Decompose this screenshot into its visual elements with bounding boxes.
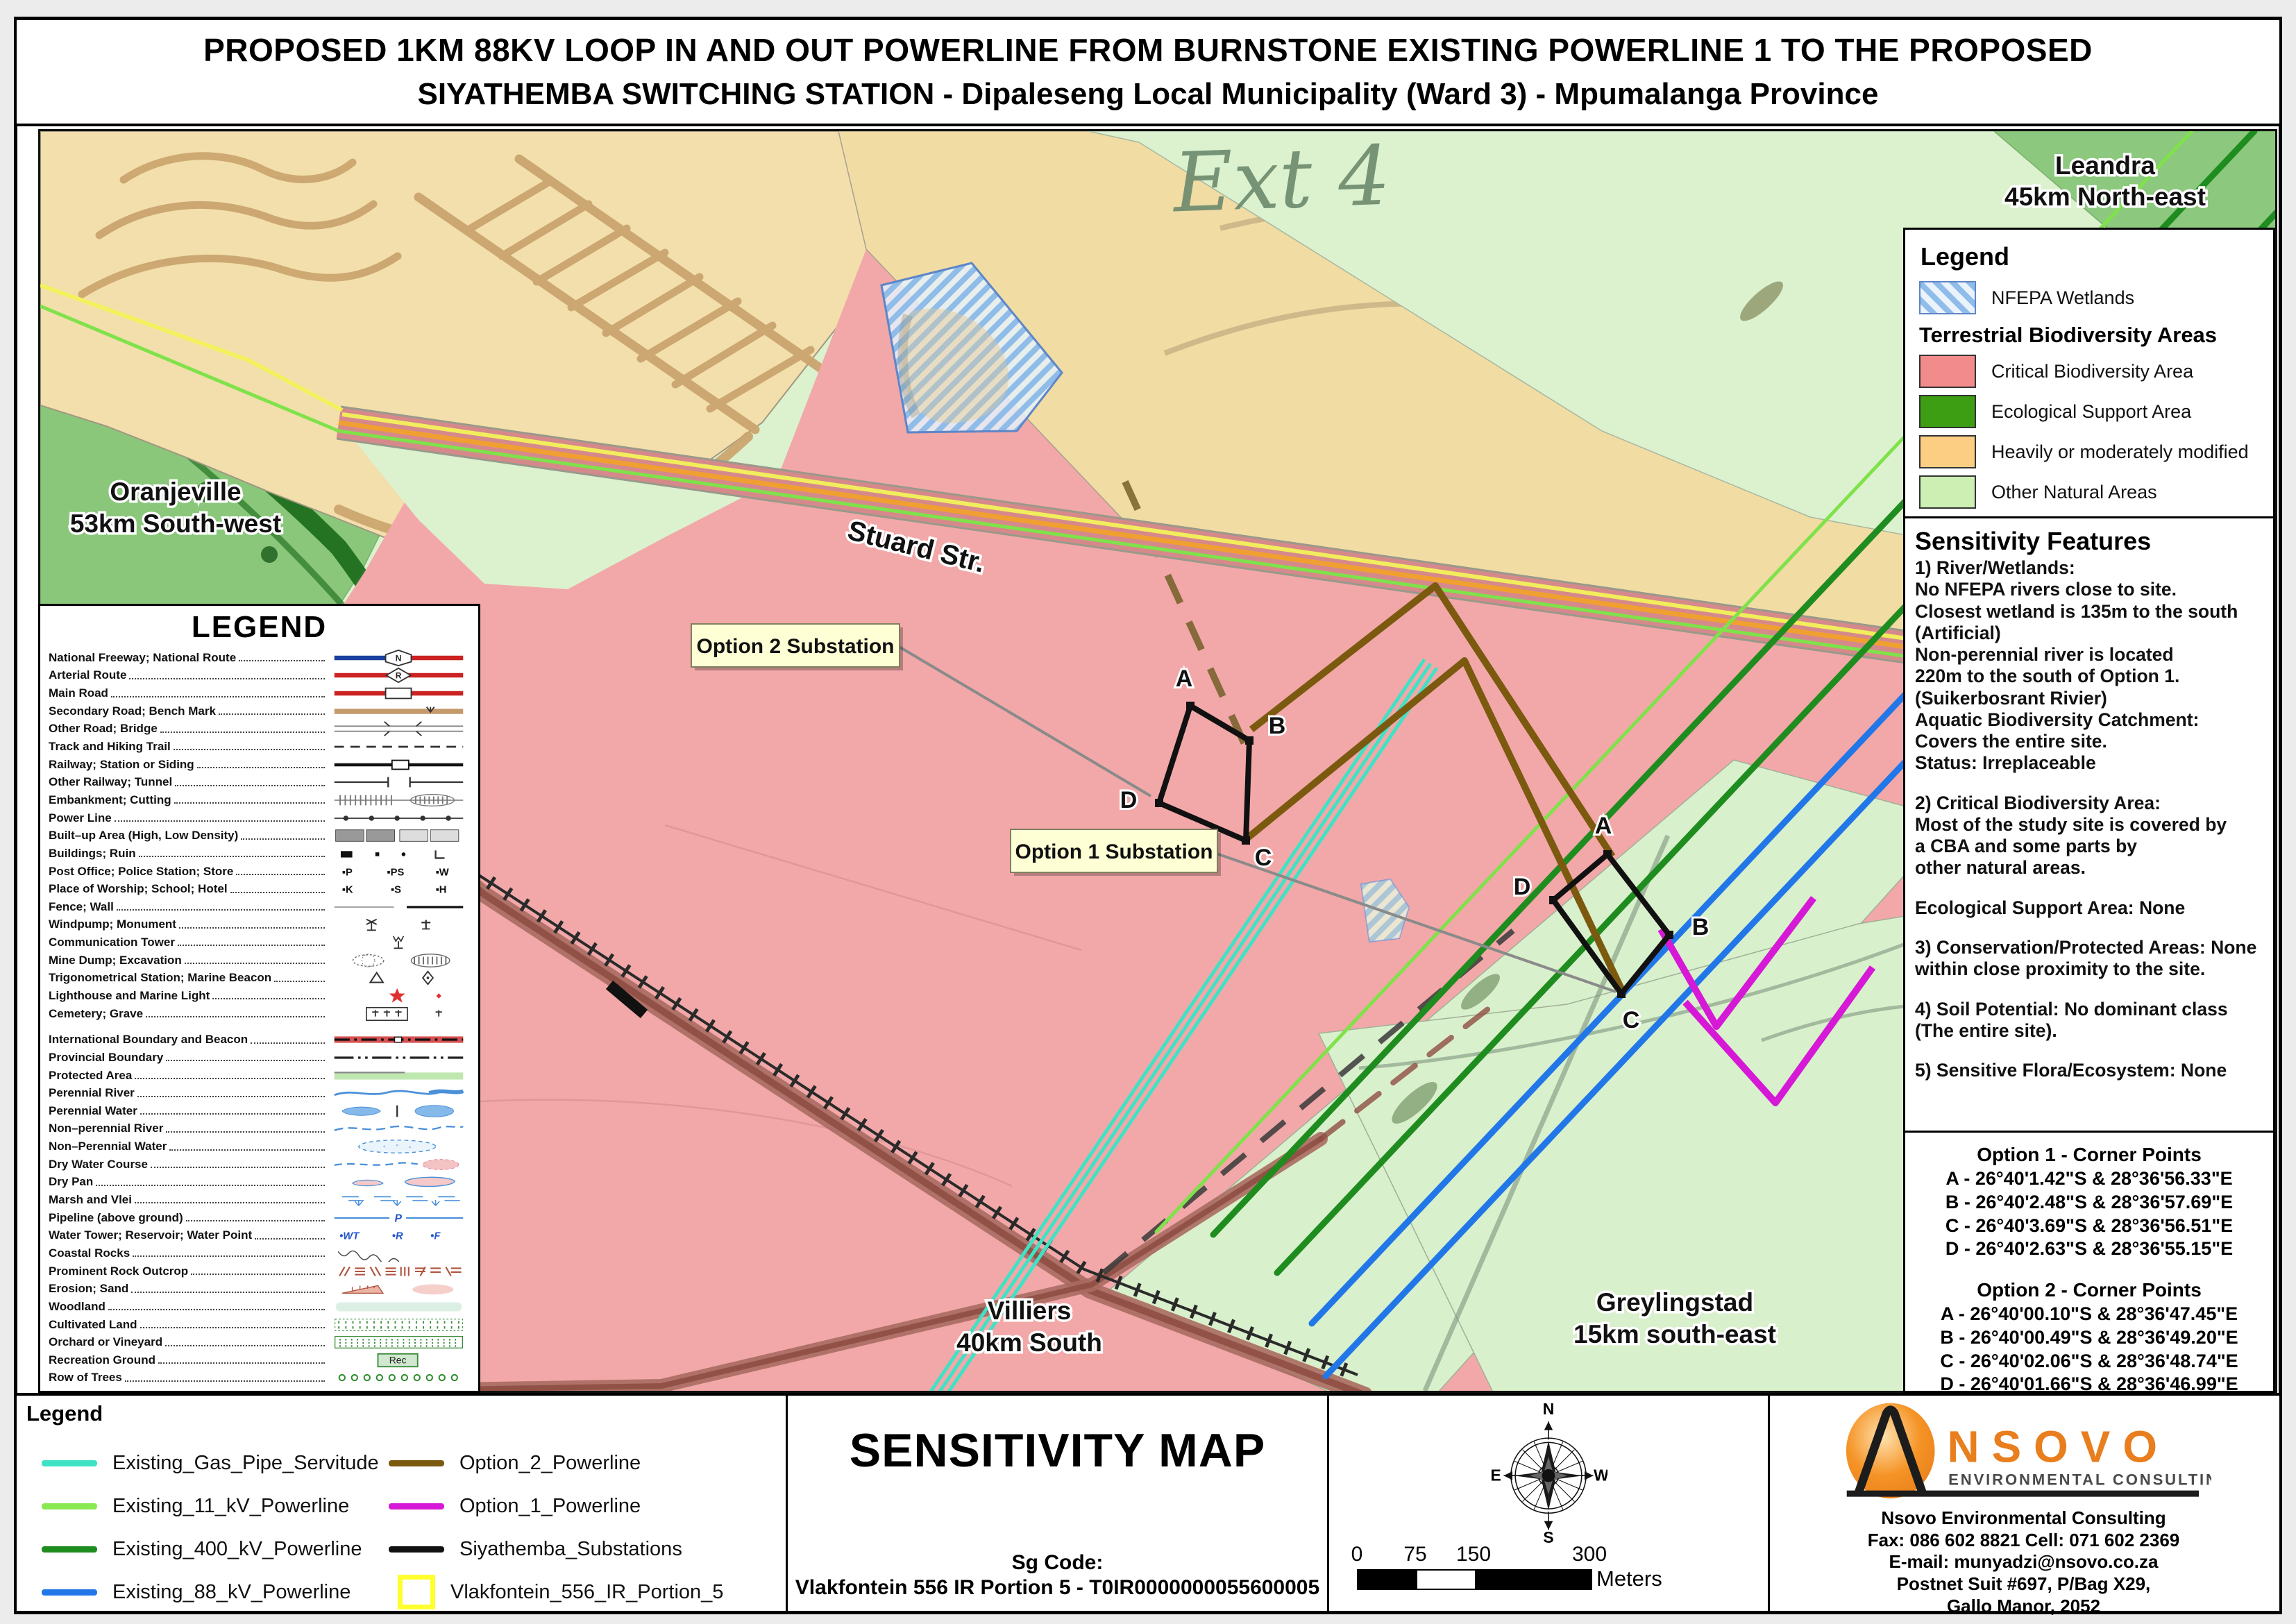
legend-dots [125,1371,325,1382]
legend-dots [137,1087,325,1097]
wetlands-label: NFEPA Wetlands [1991,287,2134,309]
nsovo-contact-line: Fax: 086 602 8821 Cell: 071 602 2369 [1770,1530,2277,1552]
recreation-symbol-icon: Rec [328,1352,470,1369]
legend-item-row: Dry Pan [49,1174,470,1192]
corner-point-row: A - 26°40'1.42"S & 28°36'56.33"E [1909,1167,2269,1191]
compass-s: S [1543,1528,1553,1544]
sensitivity-line: Status: Irreplaceable [1915,752,2263,774]
title-block: PROPOSED 1KM 88KV LOOP IN AND OUT POWERL… [17,20,2279,126]
marsh-symbol-icon [328,1192,470,1208]
legend-item-label: Power Line [49,811,112,825]
biodiversity-items: Critical Biodiversity AreaEcological Sup… [1919,355,2259,509]
scale-bar: 0 75 150 300 Meters [1329,1543,1768,1591]
legend-item-label: Non–Perennial Water [49,1140,167,1153]
color-swatch [1919,395,1976,428]
legend-item-row: International Boundary and Beacon [49,1031,470,1049]
legend-item-row: Perennial River [49,1084,470,1102]
legend-item-row: Lighthouse and Marine Light [49,987,470,1005]
line-swatch [42,1503,97,1509]
scale-bar-segments [1357,1569,1592,1590]
nonper_water-symbol-icon [328,1138,470,1155]
scale-unit: Meters [1596,1566,1662,1591]
legend-item-label: Marsh and Vlei [49,1193,132,1207]
biodiversity-legend-panel: Legend NFEPA Wetlands Terrestrial Biodiv… [1903,228,2275,518]
svg-text:Option 2 Substation: Option 2 Substation [697,635,895,658]
prov-symbol-icon [328,1049,470,1066]
svg-text:▪P: ▪P [342,867,353,878]
topo-legend-title: LEGEND [49,610,470,645]
biodiversity-item-row: Ecological Support Area [1919,395,2259,428]
leandra-label-1: Leandra [2055,151,2155,180]
bottom-legend-label: Existing_400_kV_Powerline [112,1538,362,1561]
legend-dots [186,1211,325,1221]
main-symbol-icon [328,685,470,702]
legend-dots [160,722,325,733]
orchard-symbol-icon [328,1334,470,1351]
legend-item-label: Place of Worship; School; Hotel [49,882,228,896]
legend-item-wetlands: NFEPA Wetlands [1919,281,2259,314]
legend-dots [151,1158,325,1168]
svg-text:▪PS: ▪PS [387,867,404,878]
villiers-label-2: 40km South [956,1328,1102,1357]
legend-dots [219,704,325,715]
terrestrial-subtitle: Terrestrial Biodiversity Areas [1919,323,2259,348]
legend-dots [185,954,325,964]
legend-item-row: Dry Water Course [49,1156,470,1174]
map-legend-items: National Freeway; National RouteNArteria… [49,649,470,1387]
legend-item-label: Other Road; Bridge [49,722,158,736]
svg-text:▪K: ▪K [342,885,353,896]
legend-item-label: Perennial River [49,1086,135,1100]
powerline-symbol-icon [328,810,470,827]
biodiversity-legend-title: Legend [1921,242,2259,271]
nsovo-contact: Nsovo Environmental ConsultingFax: 086 6… [1770,1507,2277,1618]
svg-text:A: A [1595,813,1612,839]
legend-dots [166,1122,325,1133]
woodland-symbol-icon [328,1299,470,1315]
greylingstad-label-2: 15km south-east [1573,1320,1776,1348]
sensitivity-lines: 1) River/Wetlands:No NFEPA rivers close … [1915,557,2263,1081]
legend-item-row: Buildings; Ruin [49,845,470,863]
legend-item-row: Protected Area [49,1067,470,1085]
nsovo-brand-sub: ENVIRONMENTAL CONSULTING [1948,1471,2211,1488]
legend-item-label: Protected Area [49,1069,132,1083]
protected-symbol-icon [328,1067,470,1084]
bottom-legend-label: Existing_Gas_Pipe_Servitude [112,1452,379,1475]
legend-item-row: Main Road [49,684,470,702]
nsovo-brand: NSOVO [1947,1422,2169,1472]
bottom-legend-grid: Existing_Gas_Pipe_ServitudeOption_2_Powe… [26,1441,786,1614]
legend-item-label: Post Office; Police Station; Store [49,865,233,879]
arterial-symbol-icon: R [328,667,470,684]
legend-item-row: Place of Worship; School; Hotel▪K▪S▪H [49,880,470,898]
legend-item-row: National Freeway; National RouteN [49,649,470,667]
svg-text:Rec: Rec [389,1354,407,1365]
bottom-legend-label: Option_2_Powerline [459,1452,641,1475]
bottom-legend-label: Existing_11_kV_Powerline [112,1495,349,1518]
railway-symbol-icon [328,756,470,773]
legend-dots [96,1176,325,1186]
legend-item-label: Fence; Wall [49,900,114,914]
legend-item-label: Dry Water Course [49,1158,148,1172]
legend-item-label: Erosion; Sand [49,1282,128,1296]
legend-item-label: Mine Dump; Excavation [49,954,182,967]
legend-item-label: Cultivated Land [49,1318,137,1332]
bottom-bar: Legend Existing_Gas_Pipe_ServitudeOption… [17,1393,2279,1611]
sensitivity-line: 1) River/Wetlands: [1915,557,2263,579]
line-swatch [389,1546,444,1553]
color-swatch [1919,475,1976,509]
bottom-legend-row: Vlakfontein_556_IR_Portion_5 [373,1575,762,1609]
line-swatch [389,1503,444,1509]
legend-item-label: Recreation Ground [49,1353,155,1367]
line-swatch [398,1575,435,1609]
legend-dots [139,847,325,857]
legend-item-row: Arterial RouteR [49,667,470,685]
buildings-symbol-icon [328,845,470,862]
legend-dots [169,1140,325,1151]
legend-dots [115,811,325,822]
legend-item-row: Water Tower; Reservoir; Water Point•WT•R… [49,1227,470,1245]
legend-item-row: Coastal Rocks [49,1244,470,1262]
per_river-symbol-icon [328,1085,470,1101]
legend-dots [129,669,325,679]
svg-text:P: P [395,1212,403,1224]
scale-tick-75: 75 [1403,1543,1426,1566]
legend-item-label: Row of Trees [49,1371,122,1385]
compass-e: W [1594,1466,1607,1484]
legend-item-label: Lighthouse and Marine Light [49,989,210,1003]
nsovo-contact-line: Nsovo Environmental Consulting [1770,1507,2277,1530]
sg-code-value: Vlakfontein 556 IR Portion 5 - T0IR00000… [788,1576,1327,1600]
watertower-symbol-icon: •WT•R•F [328,1227,470,1244]
dry_pan-symbol-icon [328,1174,470,1190]
scale-tick-0: 0 [1351,1543,1363,1566]
sensitivity-title: Sensitivity Features [1915,527,2263,556]
scale-tick-150: 150 [1456,1543,1491,1566]
nonper_river-symbol-icon [328,1120,470,1137]
svg-text:•R: •R [392,1231,403,1242]
legend-item-label: Pipeline (above ground) [49,1211,183,1225]
map-title-line1: PROPOSED 1KM 88KV LOOP IN AND OUT POWERL… [17,31,2279,69]
track-symbol-icon [328,738,470,755]
bottom-legend-label: Vlakfontein_556_IR_Portion_5 [450,1581,723,1604]
legend-item-row: Other Road; Bridge [49,720,470,738]
windpump-symbol-icon [328,916,470,933]
line-swatch [42,1546,97,1553]
legend-dots [135,1194,325,1204]
legend-item-label: International Boundary and Beacon [49,1033,248,1047]
legend-dots [191,1264,325,1275]
legend-item-label: Built–up Area (High, Low Density) [49,829,238,843]
biodiversity-item-label: Heavily or moderately modified [1991,441,2249,463]
biodiversity-item-label: Ecological Support Area [1991,401,2191,423]
line-swatch [42,1460,97,1466]
coastal-symbol-icon [328,1245,470,1262]
villiers-label-1: Villiers [988,1296,1072,1325]
sensitivity-line: 220m to the south of Option 1. [1915,666,2263,687]
legend-item-row: Non–perennial River [49,1120,470,1138]
legend-item-row: Prominent Rock Outcrop [49,1262,470,1280]
svg-text:•WT: •WT [339,1231,360,1242]
legend-dots [135,1069,325,1079]
bottom-legend-row: Existing_400_kV_Powerline [26,1538,373,1561]
legend-dots [179,918,325,929]
nsovo-logo: NSOVO ENVIRONMENTAL CONSULTING [1837,1400,2211,1504]
sensitivity-line: 3) Conservation/Protected Areas: None [1915,937,2263,958]
legend-item-row: Erosion; Sand [49,1280,470,1298]
sensitivity-line: a CBA and some parts by [1915,836,2263,857]
legend-dots [158,1353,325,1364]
intl-symbol-icon [328,1031,470,1048]
sensitivity-line [1915,1042,2263,1060]
legend-item-row: Cemetery; Grave [49,1005,470,1023]
trees-symbol-icon [328,1369,470,1386]
legend-item-row: Communication Tower [49,933,470,951]
legend-dots [111,687,325,697]
legend-dots [166,1051,325,1062]
sensitivity-line: Ecological Support Area: None [1915,897,2263,919]
sensitivity-line: Aquatic Biodiversity Catchment: [1915,709,2263,731]
svg-text:Option 1 Substation: Option 1 Substation [1015,840,1213,863]
po-symbol-icon: ▪P▪PS▪W [328,863,470,880]
nsovo-contact-line: Gallo Manor, 2052 [1770,1596,2277,1618]
legend-dots [175,776,325,786]
sensitivity-line: Non-perennial river is located [1915,644,2263,666]
sensitivity-line: within close proximity to the site. [1915,958,2263,980]
legend-item-label: Water Tower; Reservoir; Water Point [49,1228,252,1242]
legend-item-label: Arterial Route [49,668,126,682]
legend-dots [140,1104,325,1115]
worship-symbol-icon: ▪K▪S▪H [328,881,470,897]
legend-item-row: Mine Dump; Excavation [49,951,470,970]
legend-item-label: Dry Pan [49,1175,93,1189]
legend-item-row: Trigonometrical Station; Marine Beacon [49,970,470,988]
legend-dots [140,1318,325,1328]
fence-symbol-icon [328,899,470,915]
option1-corner-title: Option 1 - Corner Points [1909,1144,2269,1166]
legend-item-label: Main Road [49,686,108,700]
nsovo-contact-line: Postnet Suit #697, P/Bag X29, [1770,1573,2277,1596]
legend-item-label: Provincial Boundary [49,1051,163,1065]
legend-dots [230,883,325,893]
biodiversity-item-label: Other Natural Areas [1991,482,2157,503]
freeway-symbol-icon: N [328,650,470,666]
legend-item-row: Orchard or Vineyard [49,1333,470,1351]
legend-item-row: Power Line [49,809,470,827]
svg-text:B: B [1692,914,1710,940]
nsovo-contact-line: E-mail: munyadzi@nsovo.co.za [1770,1551,2277,1573]
legend-item-row: Embankment; Cutting [49,791,470,809]
corner-point-row: C - 26°40'02.06"S & 28°36'48.74"E [1909,1350,2269,1373]
legend-item-label: Perennial Water [49,1104,137,1118]
cemetery-symbol-icon [328,1006,470,1022]
legend-dots [131,1283,325,1293]
other_road-symbol-icon [328,720,470,737]
ext4-label: Ext 4 [1170,131,1392,231]
legend-dots [212,990,325,1000]
map-title-line2: SIYATHEMBA SWITCHING STATION - Dipalesen… [17,77,2279,112]
corner-point-row: B - 26°40'2.48"S & 28°36'57.69"E [1909,1191,2269,1215]
bottom-legend-row: Option_2_Powerline [373,1452,762,1475]
sensitivity-line [1915,879,2263,897]
biodiversity-item-row: Heavily or moderately modified [1919,435,2259,468]
corner-point-row: C - 26°40'3.69"S & 28°36'56.51"E [1909,1215,2269,1238]
legend-item-label: Track and Hiking Trail [49,740,171,754]
line-swatch [42,1589,97,1596]
svg-text:D: D [1120,787,1138,813]
wetlands-hatch-swatch [1919,281,1976,314]
legend-item-row: Provincial Boundary [49,1049,470,1067]
trig-symbol-icon [328,970,470,986]
legend-item-label: Non–perennial River [49,1122,163,1135]
nsovo-cell: NSOVO ENVIRONMENTAL CONSULTING Nsovo Env… [1770,1396,2277,1611]
legend-item-label: Prominent Rock Outcrop [49,1264,188,1278]
legend-dots [241,829,325,840]
svg-text:▪H: ▪H [436,885,447,896]
legend-item-row: Non–Perennial Water [49,1137,470,1156]
legend-item-row: Cultivated Land [49,1316,470,1334]
legend-item-label: Other Railway; Tunnel [49,775,172,789]
compass-rose: N S W E [1489,1400,1607,1548]
legend-item-row: Pipeline (above ground)P [49,1209,470,1227]
legend-item-label: Embankment; Cutting [49,793,171,807]
sensitivity-line: 5) Sensitive Flora/Ecosystem: None [1915,1060,2263,1081]
legend-item-row: Other Railway; Tunnel [49,773,470,791]
bottom-legend-row: Option_1_Powerline [373,1495,762,1518]
svg-text:•F: •F [430,1231,441,1242]
sensitivity-line [1915,775,2263,793]
legend-dots [174,741,325,751]
bottom-legend-row: Existing_88_kV_Powerline [26,1581,373,1604]
legend-dots [236,865,325,875]
legend-item-label: Windpump; Monument [49,917,176,931]
minedump-symbol-icon [328,952,470,969]
sensitivity-line: 2) Critical Biodiversity Area: [1915,793,2263,814]
legend-dots [165,1336,325,1346]
sg-code-label: Sg Code: [788,1551,1327,1575]
legend-item-row: Railway; Station or Siding [49,756,470,774]
biodiversity-item-label: Critical Biodiversity Area [1991,361,2193,382]
legend-item-row: Marsh and Vlei [49,1191,470,1209]
leandra-label-2: 45km North-east [2004,183,2206,211]
scale-tick-300: 300 [1572,1543,1607,1566]
corner-point-row: B - 26°40'00.49"S & 28°36'49.20"E [1909,1326,2269,1350]
legend-item-row: Row of Trees [49,1369,470,1387]
svg-text:N: N [396,653,402,663]
legend-item-row: Windpump; Monument [49,916,470,934]
corner-point-row: A - 26°40'00.10"S & 28°36'47.45"E [1909,1303,2269,1326]
bottom-legend-row: Siyathemba_Substations [373,1538,762,1561]
biodiversity-item-row: Critical Biodiversity Area [1919,355,2259,388]
legend-item-label: Orchard or Vineyard [49,1335,162,1349]
greylingstad-label-1: Greylingstad [1596,1288,1753,1317]
sensitivity-line: Closest wetland is 135m to the south [1915,601,2263,623]
map-type-title: SENSITIVITY MAP [788,1423,1327,1478]
svg-text:R: R [396,671,402,681]
cultivated-symbol-icon [328,1317,470,1333]
color-swatch [1919,435,1976,468]
legend-item-label: Trigonometrical Station; Marine Beacon [49,971,271,985]
embankment-symbol-icon [328,792,470,809]
corner-points-panel: Option 1 - Corner Points A - 26°40'1.42"… [1903,1131,2275,1393]
legend-item-label: Coastal Rocks [49,1246,130,1260]
bottom-legend-label: Siyathemba_Substations [459,1538,682,1561]
legend-item-row: Woodland [49,1298,470,1316]
legend-item-label: Cemetery; Grave [49,1007,143,1021]
bottom-legend-cell: Legend Existing_Gas_Pipe_ServitudeOption… [17,1396,788,1611]
compass-w: E [1490,1466,1501,1484]
other_railway-symbol-icon [328,774,470,790]
topo-legend-panel: LEGEND National Freeway; National RouteN… [38,604,480,1393]
bottom-legend-label: Option_1_Powerline [459,1495,641,1518]
legend-dots [239,651,325,661]
svg-text:C: C [1623,1007,1640,1033]
corner-point-row: D - 26°40'2.63"S & 28°36'55.15"E [1909,1237,2269,1261]
line-swatch [389,1460,444,1466]
legend-item-label: Woodland [49,1300,105,1314]
legend-dots [274,972,325,982]
dry_course-symbol-icon [328,1156,470,1173]
legend-item-row: Perennial Water [49,1102,470,1120]
sensitivity-line: No NFEPA rivers close to site. [1915,579,2263,600]
sensitivity-line: 4) Soil Potential: No dominant class [1915,999,2263,1020]
svg-text:A: A [1176,666,1193,692]
svg-text:▪S: ▪S [391,885,401,896]
sensitivity-line: Covers the entire site. [1915,731,2263,752]
legend-dots [251,1033,325,1044]
sensitivity-line [1915,981,2263,999]
legend-dots [133,1247,325,1258]
legend-item-label: Communication Tower [49,936,175,949]
rock-symbol-icon [328,1263,470,1280]
svg-text:D: D [1514,874,1531,900]
legend-dots [178,936,325,947]
legend-item-row: Recreation GroundRec [49,1351,470,1369]
option2-corner-title: Option 2 - Corner Points [1909,1279,2269,1301]
tower-symbol-icon [328,934,470,951]
biodiversity-item-row: Other Natural Areas [1919,475,2259,509]
legend-dots [117,900,325,911]
oranjeville-label-1: Oranjeville [110,477,241,506]
legend-dots [255,1229,325,1240]
legend-item-row: Built–up Area (High, Low Density) [49,827,470,845]
option1-corner-list: A - 26°40'1.42"S & 28°36'56.33"EB - 26°4… [1909,1167,2269,1261]
legend-dots [197,758,325,768]
lighthouse-symbol-icon [328,988,470,1004]
secondary-symbol-icon [328,703,470,720]
sensitivity-line: (The entire site). [1915,1020,2263,1042]
legend-dots [146,1007,325,1017]
legend-item-row: Secondary Road; Bench Mark [49,702,470,720]
compass-scale-cell: N S W E [1329,1396,1770,1611]
legend-item-label: Secondary Road; Bench Mark [49,704,216,718]
option2-corner-list: A - 26°40'00.10"S & 28°36'47.45"EB - 26°… [1909,1303,2269,1396]
per_water-symbol-icon [328,1103,470,1119]
map-type-cell: SENSITIVITY MAP Sg Code: Vlakfontein 556… [788,1396,1329,1611]
oranjeville-label-2: 53km South-west [70,509,281,538]
sensitivity-line [1915,919,2263,937]
builtup-symbol-icon [328,827,470,844]
legend-dots [108,1300,325,1310]
sensitivity-line: (Artificial) [1915,623,2263,644]
sensitivity-line: Most of the study site is covered by [1915,814,2263,836]
svg-text:▪W: ▪W [436,867,449,878]
legend-item-label: National Freeway; National Route [49,651,236,665]
legend-item-label: Railway; Station or Siding [49,758,194,772]
sensitivity-line: (Suikerbosrant Rivier) [1915,688,2263,709]
compass-n: N [1543,1400,1555,1418]
